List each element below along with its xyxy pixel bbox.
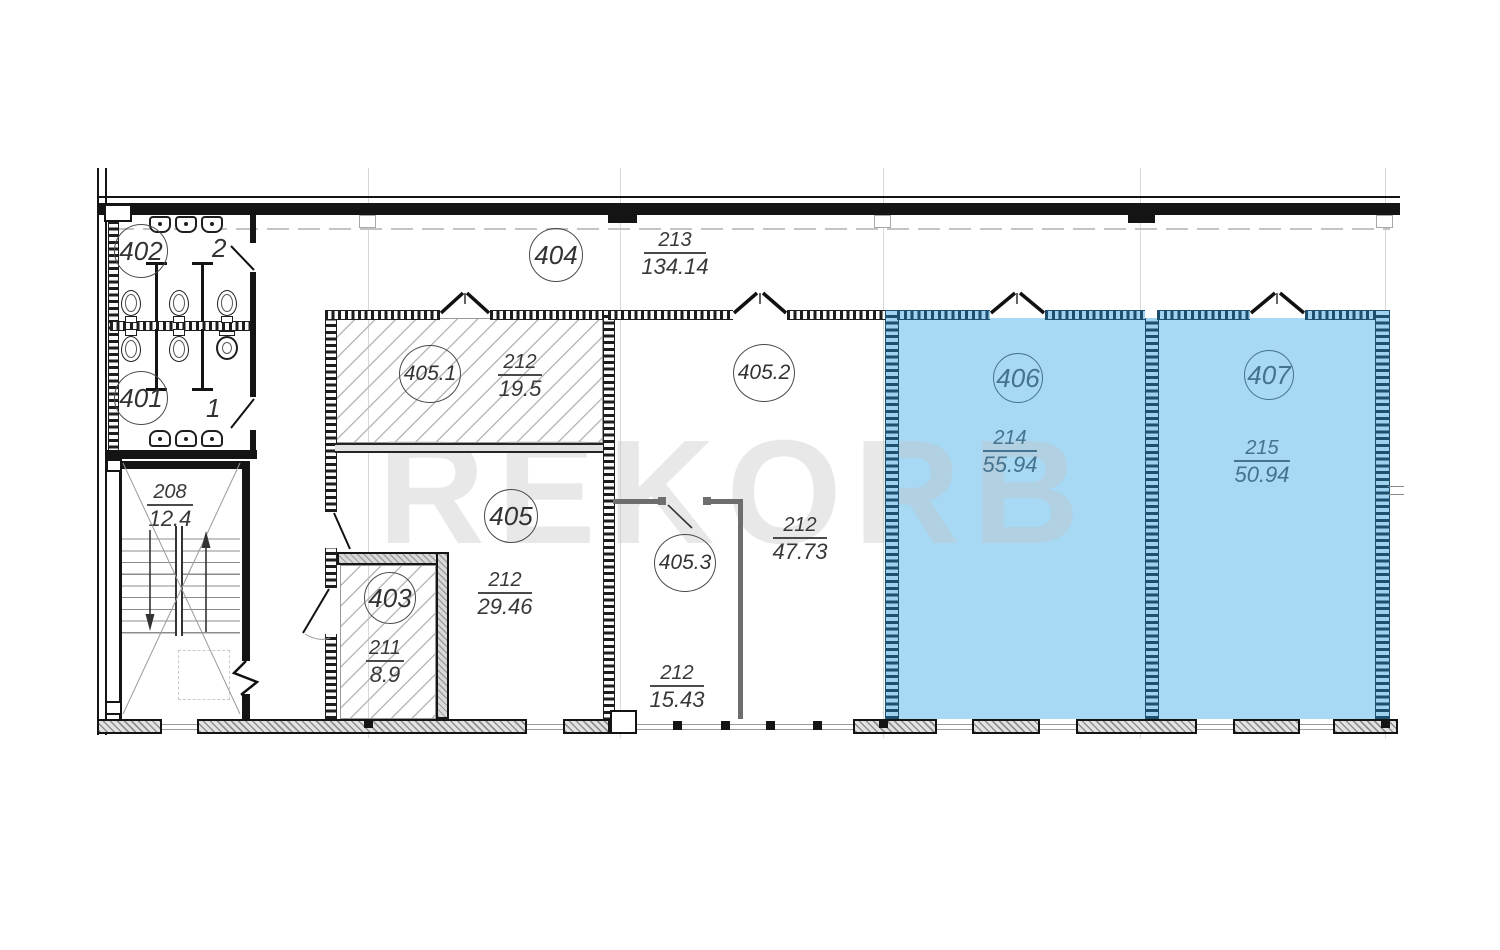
bottom-wall-pier <box>197 719 527 734</box>
room-405-1-label: 405.1 <box>399 345 461 403</box>
grid-marker <box>1381 719 1390 728</box>
room-406-area: 55.94 <box>982 453 1037 477</box>
room-405-area-label: 212 29.46 <box>460 569 550 619</box>
room-407-code: 215 <box>1245 437 1278 459</box>
room-407-label: 407 <box>1244 350 1294 400</box>
exterior-wall-top <box>97 203 1400 215</box>
stair-right-wall-stub <box>242 694 250 719</box>
stairwell-code: 208 <box>153 481 186 503</box>
stair-right-wall <box>242 461 250 661</box>
axis-dash-line <box>112 228 1390 230</box>
room-405-code: 212 <box>488 569 521 591</box>
stair-top-wall <box>120 461 242 469</box>
bottom-wall-pier <box>853 719 937 734</box>
door-swing-405-1 <box>441 293 489 313</box>
window <box>1040 724 1076 730</box>
window <box>937 724 972 730</box>
window <box>1197 724 1233 730</box>
bottom-wall-pier <box>972 719 1040 734</box>
room-405-3-partition-cap <box>658 497 666 505</box>
room-407-area-label: 215 50.94 <box>1217 437 1307 487</box>
vestibule-wall <box>325 310 337 512</box>
floor-plan: REKORB <box>0 0 1500 950</box>
window-mullion <box>673 721 682 730</box>
room-405-3-label: 405.3 <box>654 534 716 592</box>
window <box>527 724 563 730</box>
sink-icon <box>201 430 223 447</box>
sink-icon <box>175 430 197 447</box>
room-405-2-code: 212 <box>783 514 816 536</box>
exterior-wall-top-line <box>97 196 1400 198</box>
toilet-icon <box>169 290 189 316</box>
corridor-area-label: 213 134.14 <box>630 229 720 279</box>
room-405-1-top-wall <box>325 310 440 320</box>
room-405-area: 29.46 <box>477 595 532 619</box>
room-403-area-label: 211 8.9 <box>340 637 430 687</box>
room-405-1-area: 19.5 <box>499 377 542 401</box>
window-mullion <box>721 721 730 730</box>
door-leaf-wc-2 <box>231 246 254 270</box>
sink-icon <box>149 430 171 447</box>
restroom-right-wall <box>250 215 256 243</box>
toilet-icon <box>169 336 189 362</box>
room-405-2-area: 47.73 <box>772 540 827 564</box>
room-403-right-wall <box>436 552 449 719</box>
window <box>162 724 197 730</box>
room-407-area: 50.94 <box>1234 463 1289 487</box>
grid-marker-box <box>1376 215 1393 228</box>
stall-partition-cap <box>192 388 213 391</box>
room-405-1-area-label: 212 19.5 <box>475 351 565 401</box>
room-406-top-wall <box>1045 310 1145 320</box>
vestibule-wall <box>325 548 337 588</box>
grid-marker <box>879 719 888 728</box>
vestibule-wall <box>325 634 337 719</box>
room-404-label: 404 <box>529 228 583 282</box>
stall-partition <box>201 329 204 391</box>
bottom-wall-pier <box>563 719 610 734</box>
room-405-2-top-wall <box>787 310 890 320</box>
room-405-3-area-label: 212 15.43 <box>632 662 722 712</box>
window-mullion <box>766 721 775 730</box>
door-leaf-403 <box>303 589 330 639</box>
stair-landing-dashed <box>178 650 230 700</box>
stair-stringer <box>175 526 183 636</box>
stall-partition <box>201 264 204 321</box>
bottom-wall-pier <box>1233 719 1300 734</box>
toilet-icon <box>217 290 237 316</box>
grid-marker-box <box>874 215 891 228</box>
window-mullion <box>813 721 822 730</box>
exterior-wall-right <box>1375 310 1390 719</box>
room-402-label: 402 <box>114 224 168 278</box>
room-403-code: 211 <box>369 637 401 659</box>
room-405-2-top-wall <box>608 310 733 320</box>
pilaster <box>608 203 637 223</box>
right-wall-stub <box>1388 486 1404 495</box>
room-403-top-wall <box>337 552 449 565</box>
toilet-icon <box>121 290 141 316</box>
room-405-label: 405 <box>484 489 538 543</box>
restroom-right-wall <box>250 272 256 397</box>
room-405-3-right-wall <box>738 499 743 719</box>
door-swing-407 <box>1251 293 1304 313</box>
grid-marker-box <box>359 215 376 228</box>
room-406-top-wall <box>897 310 990 320</box>
bottom-wall-pier <box>97 719 162 734</box>
grid-marker <box>364 719 373 728</box>
room-405-3-code: 212 <box>660 662 693 684</box>
room-407-top-wall <box>1157 310 1250 320</box>
sink-icon <box>175 216 197 233</box>
cistern-icon <box>219 331 235 336</box>
corner-box <box>104 204 132 222</box>
room-406-label: 406 <box>993 353 1043 403</box>
room-405-2-label: 405.2 <box>733 344 795 402</box>
room-405-3-partition-cap <box>703 497 711 505</box>
stair-corner-box <box>105 701 122 715</box>
window <box>1300 724 1333 730</box>
room-405-1-code: 212 <box>503 351 536 373</box>
wall-4052-406 <box>885 310 899 719</box>
stairwell-area-label: 208 12.4 <box>125 481 215 531</box>
room-405-1-top-wall <box>490 310 608 320</box>
door-swing-406 <box>991 293 1044 313</box>
wall-hung-toilet-icon <box>216 336 238 360</box>
sink-icon <box>201 216 223 233</box>
stall-2-label: 2 <box>212 233 226 264</box>
room-401-label: 401 <box>114 371 168 425</box>
room-406-area-label: 214 55.94 <box>965 427 1055 477</box>
exterior-wall-left <box>97 168 107 735</box>
door-leaf-wc-1 <box>231 399 254 428</box>
pilaster <box>1128 203 1155 223</box>
wall-4051-405 <box>335 443 603 453</box>
pier-corner-box <box>610 710 637 734</box>
room-403-label: 403 <box>364 572 416 624</box>
restroom-bottom-wall <box>107 450 257 459</box>
bottom-wall-pier <box>1076 719 1197 734</box>
door-leaf-405 <box>334 513 350 549</box>
stall-1-label: 1 <box>206 393 220 424</box>
wall-405-4052 <box>603 310 615 727</box>
corridor-area: 134.14 <box>641 255 708 279</box>
wall-406-407 <box>1145 318 1159 719</box>
room-405-2-area-label: 212 47.73 <box>755 514 845 564</box>
door-swing-405-2 <box>734 293 786 313</box>
corridor-code: 213 <box>658 229 691 251</box>
room-406-code: 214 <box>993 427 1026 449</box>
stairwell-area: 12.4 <box>149 507 192 531</box>
toilet-icon <box>121 336 141 362</box>
stall-partition-cap <box>192 262 213 265</box>
stair-corner-box <box>106 459 122 472</box>
room-405-3-area: 15.43 <box>649 688 704 712</box>
room-403-area: 8.9 <box>370 663 401 687</box>
